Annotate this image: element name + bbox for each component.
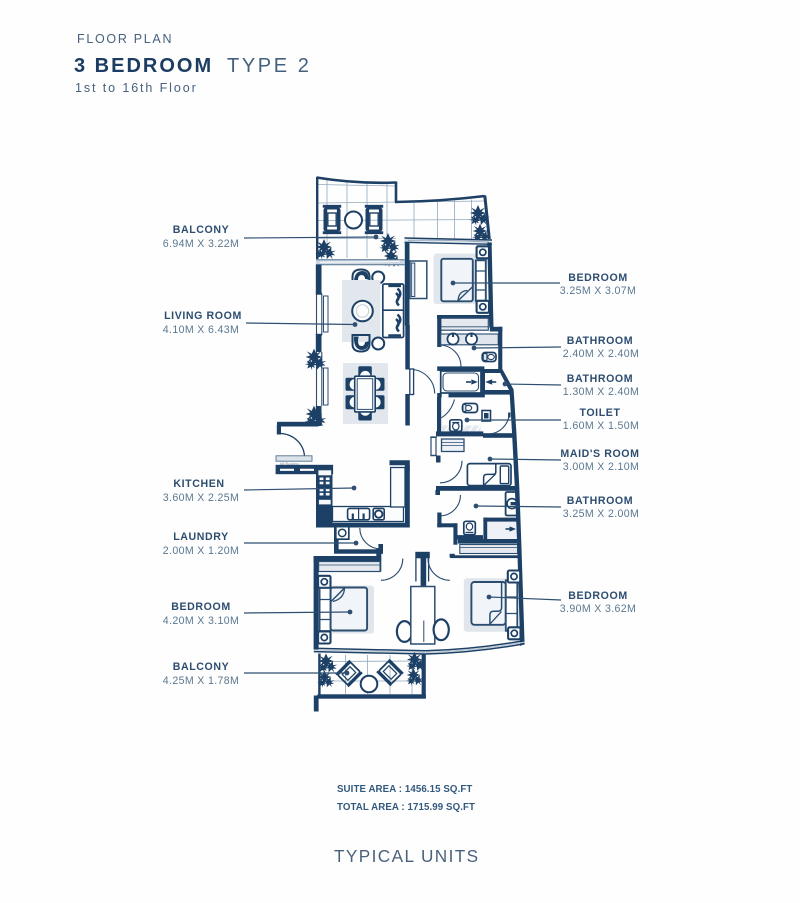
svg-text:BEDROOM: BEDROOM [171,601,231,613]
svg-text:BEDROOM: BEDROOM [568,272,628,284]
svg-text:MAID'S ROOM: MAID'S ROOM [560,448,639,460]
svg-text:3.25M X 3.07M: 3.25M X 3.07M [560,285,636,297]
svg-text:LAUNDRY: LAUNDRY [173,531,229,543]
svg-text:2.00M X 1.20M: 2.00M X 1.20M [163,545,239,557]
svg-text:TYPICAL UNITS: TYPICAL UNITS [334,846,480,866]
svg-text:BATHROOM: BATHROOM [567,335,633,347]
svg-text:3.60M X 2.25M: 3.60M X 2.25M [163,492,239,504]
svg-text:3.25M X 2.00M: 3.25M X 2.00M [563,508,639,520]
svg-text:BEDROOM: BEDROOM [568,590,628,602]
svg-text:KITCHEN: KITCHEN [173,478,224,490]
svg-text:3.00M X 2.10M: 3.00M X 2.10M [563,461,639,473]
svg-text:4.25M X 1.78M: 4.25M X 1.78M [163,675,239,687]
svg-text:FLOOR PLAN: FLOOR PLAN [77,32,173,46]
svg-text:1st to 16th Floor: 1st to 16th Floor [75,81,198,95]
svg-text:SUITE AREA : 1456.15 SQ.FT: SUITE AREA : 1456.15 SQ.FT [337,784,472,795]
svg-text:2.40M X 2.40M: 2.40M X 2.40M [563,348,639,360]
svg-text:BATHROOM: BATHROOM [567,495,633,507]
svg-text:3.90M X 3.62M: 3.90M X 3.62M [560,603,636,615]
svg-text:LIVING ROOM: LIVING ROOM [164,310,242,322]
svg-text:6.94M X 3.22M: 6.94M X 3.22M [163,238,239,250]
svg-text:4.20M X 3.10M: 4.20M X 3.10M [163,615,239,627]
svg-text:3 BEDROOM: 3 BEDROOM [74,55,213,77]
svg-text:TOILET: TOILET [579,407,620,419]
svg-text:1.30M X 2.40M: 1.30M X 2.40M [563,386,639,398]
svg-text:TYPE 2: TYPE 2 [227,55,312,77]
svg-text:BALCONY: BALCONY [173,661,230,673]
svg-text:1.60M X 1.50M: 1.60M X 1.50M [563,420,639,432]
svg-text:BATHROOM: BATHROOM [567,373,633,385]
svg-text:4.10M X 6.43M: 4.10M X 6.43M [163,324,239,336]
svg-text:BALCONY: BALCONY [173,224,230,236]
svg-text:TOTAL AREA : 1715.99 SQ.FT: TOTAL AREA : 1715.99 SQ.FT [337,802,475,813]
